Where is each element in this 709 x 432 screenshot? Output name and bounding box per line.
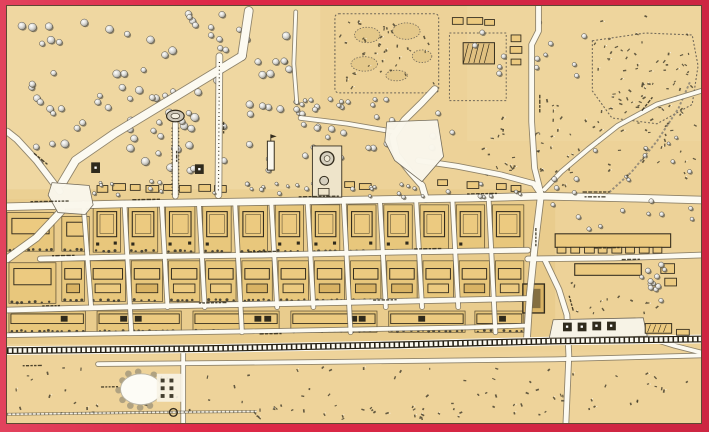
map-canvas [7,6,701,423]
street-name-label [539,95,540,113]
map-frame-border [0,0,709,432]
map-paper [6,5,702,424]
street-name-label [583,191,610,192]
map-screenshot [0,0,709,432]
street-name-label [223,122,224,134]
street-name-label [176,151,177,162]
